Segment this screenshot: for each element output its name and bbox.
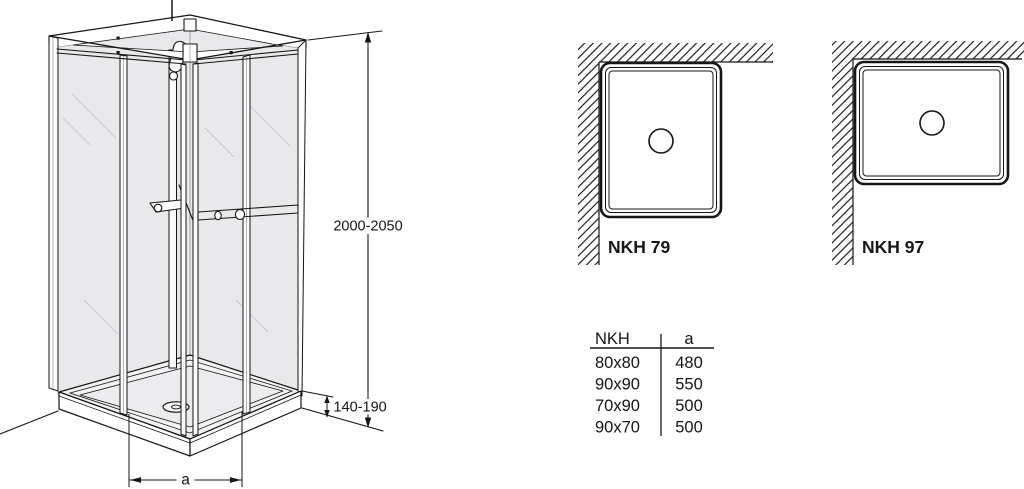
plan-label-nkh-79: NKH 79 [608, 237, 671, 257]
table-cell-a: 500 [675, 397, 703, 415]
table-header-nkh: NKH [595, 330, 630, 348]
table-cell-size: 80x80 [595, 354, 640, 372]
plan-label-nkh-97: NKH 97 [862, 237, 924, 257]
arrow-right-icon [230, 477, 241, 483]
tray-top-witness-line [302, 391, 333, 397]
roof-top-witness-line [308, 31, 382, 40]
table-cell-size: 90x90 [595, 376, 640, 394]
plan-view-nkh-97: NKH 97 [832, 41, 1024, 265]
width-dimension-label: a [181, 472, 190, 489]
technical-drawing-canvas: 2000-2050 140-190 a NKH 79 [0, 0, 1024, 489]
table-row: 70x90 500 [595, 397, 703, 415]
fastener-dot-icon [117, 51, 120, 54]
drawing-sheet: 2000-2050 140-190 a NKH 79 [0, 0, 1024, 489]
shower-head-holder-knob [170, 72, 178, 80]
fastener-dot-icon [117, 37, 120, 40]
table-row: 90x90 550 [595, 376, 703, 394]
shower-tray-outline [855, 62, 1008, 184]
roof-back-corner-joint [184, 19, 196, 31]
front-corner-post-right [193, 63, 198, 436]
corner-post-left-outer [49, 36, 58, 391]
table-cell-a: 550 [675, 376, 703, 394]
floor-line-left [0, 411, 58, 434]
bar-hole-icon [235, 210, 244, 220]
glass-back-walls [58, 29, 298, 394]
table-cell-a: 480 [675, 354, 703, 372]
shower-cabin-isometric-drawing [0, 0, 383, 456]
shower-tray-outline [601, 63, 721, 217]
table-cell-size: 70x90 [595, 397, 640, 415]
size-table: NKH a 80x80 480 90x90 550 70x90 500 90x7… [590, 330, 714, 437]
plan-view-nkh-79: NKH 79 [578, 43, 773, 265]
bar-hole-icon [215, 211, 221, 219]
height-dimension-label: 2000-2050 [333, 219, 402, 235]
tray-height-dimension: 140-190 [324, 396, 386, 418]
height-dimension: 2000-2050 [333, 32, 402, 428]
table-row: 80x80 480 [595, 354, 703, 372]
tray-height-dimension-label: 140-190 [334, 400, 387, 416]
arrow-up-icon [365, 32, 371, 43]
table-row: 90x70 500 [595, 419, 703, 437]
table-cell-size: 90x70 [595, 419, 640, 437]
shelf-knob [154, 204, 162, 212]
fastener-dot-icon [230, 51, 233, 54]
front-corner-post-left [181, 64, 186, 436]
arrow-left-icon [130, 477, 141, 483]
arrow-down-icon [324, 410, 329, 418]
corner-post-right-outer [298, 40, 306, 396]
table-cell-a: 500 [675, 419, 703, 437]
table-header-a: a [684, 330, 694, 348]
